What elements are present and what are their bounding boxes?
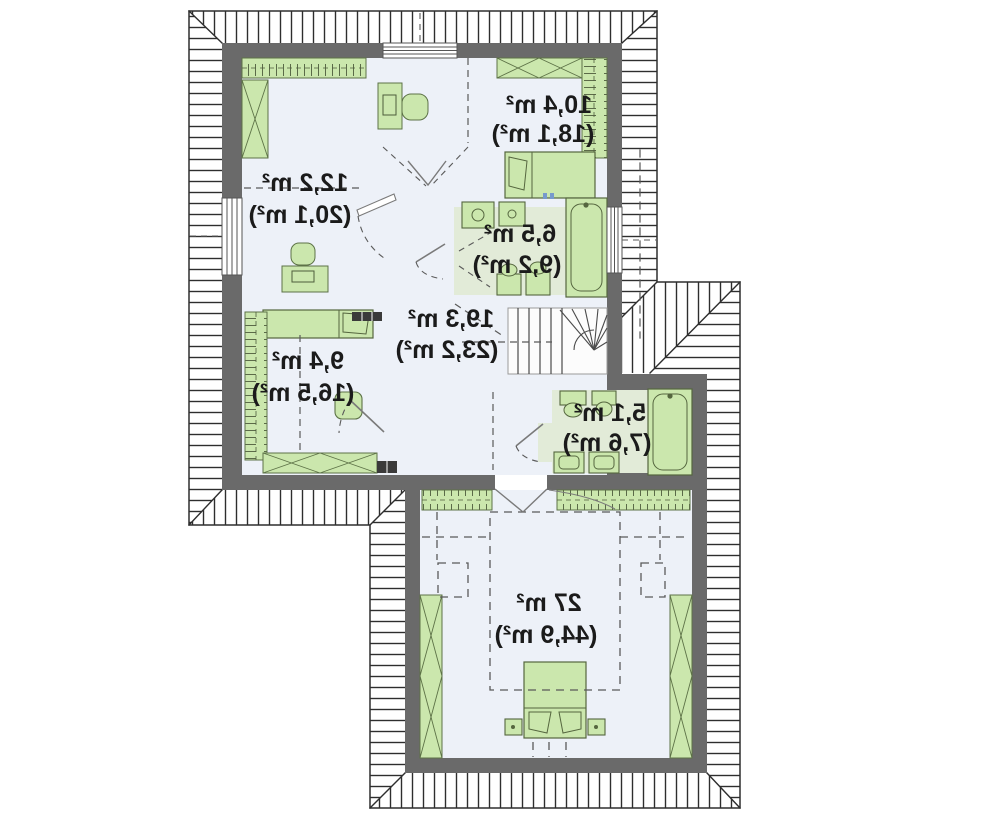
floor-plan-drawing: 12,2 m² (20,1 m²) 10,4 m² (18,1 m²) 6,5 … bbox=[0, 0, 1000, 822]
wardrobe-x bbox=[263, 453, 377, 473]
bathtub bbox=[566, 198, 607, 297]
desk-chair bbox=[291, 243, 315, 265]
svg-text:12,2 m²: 12,2 m² bbox=[262, 169, 348, 197]
wardrobe-x bbox=[497, 58, 582, 78]
double-bed bbox=[524, 662, 586, 738]
nightstand bbox=[505, 719, 522, 735]
svg-text:19,3 m²: 19,3 m² bbox=[408, 305, 494, 333]
floor-plan-page: 12,2 m² (20,1 m²) 10,4 m² (18,1 m²) 6,5 … bbox=[0, 0, 1000, 822]
wardrobe-x bbox=[420, 595, 442, 758]
svg-text:(16,5 m²): (16,5 m²) bbox=[252, 379, 355, 407]
wardrobe-x bbox=[242, 80, 268, 158]
svg-text:(18,1 m²): (18,1 m²) bbox=[492, 120, 595, 148]
svg-text:(20,1 m²): (20,1 m²) bbox=[249, 201, 352, 229]
wardrobe-x bbox=[670, 595, 692, 758]
nightstand bbox=[588, 719, 605, 735]
svg-text:(7,6 m²): (7,6 m²) bbox=[563, 429, 652, 457]
room-label-bedroom-top: 10,4 m² (18,1 m²) bbox=[492, 91, 595, 148]
svg-text:(9,2 m²): (9,2 m²) bbox=[473, 251, 562, 279]
svg-text:27 m²: 27 m² bbox=[516, 589, 581, 617]
single-bed bbox=[505, 152, 595, 198]
svg-text:(23,2 m²): (23,2 m²) bbox=[396, 336, 499, 364]
doorway-toilet bbox=[538, 423, 552, 462]
desk bbox=[378, 83, 402, 129]
faucet-icon bbox=[667, 393, 672, 398]
svg-text:(44,9 m²): (44,9 m²) bbox=[495, 621, 598, 649]
faucet-icon bbox=[583, 202, 588, 207]
svg-text:9,4 m²: 9,4 m² bbox=[272, 347, 344, 375]
desk bbox=[282, 266, 328, 292]
bathtub bbox=[648, 389, 692, 475]
svg-text:6,5 m²: 6,5 m² bbox=[484, 220, 556, 248]
desk-chair bbox=[402, 94, 428, 120]
svg-text:10,4 m²: 10,4 m² bbox=[506, 91, 592, 119]
radiator bbox=[352, 312, 382, 321]
svg-text:5,1 m²: 5,1 m² bbox=[574, 399, 646, 427]
